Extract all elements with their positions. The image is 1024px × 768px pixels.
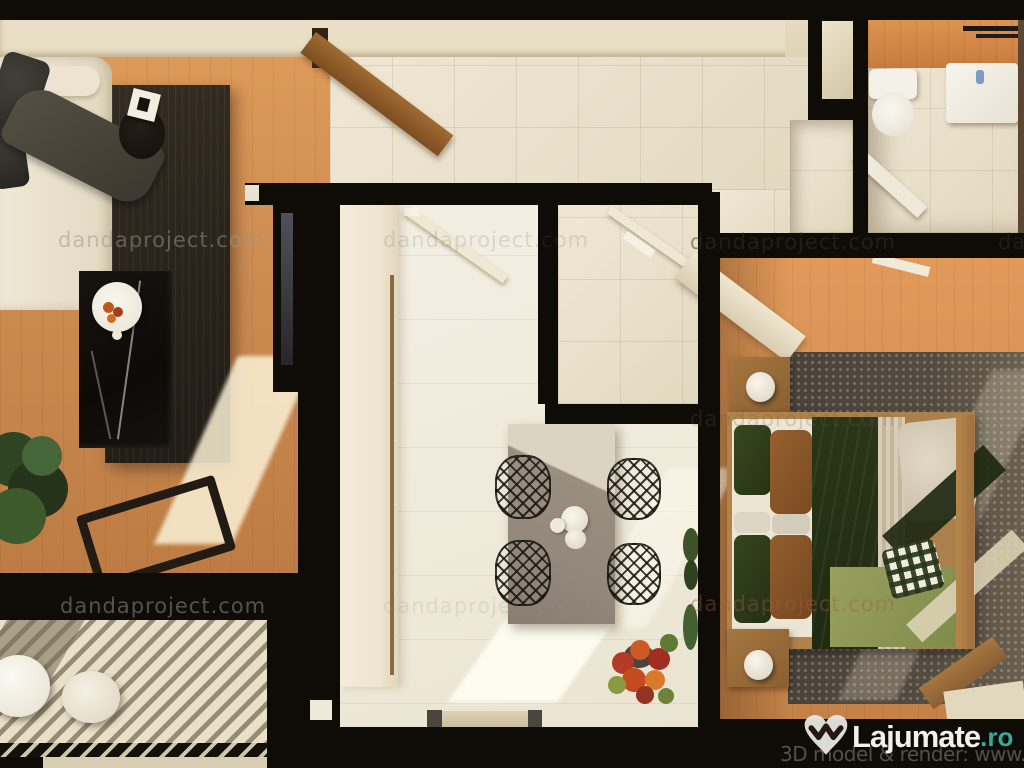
fruit xyxy=(107,314,116,323)
top-exterior-wall xyxy=(0,0,1024,20)
bed-frame-footboard xyxy=(956,415,974,649)
dining-chair xyxy=(607,543,661,605)
dining-chair xyxy=(495,455,551,519)
dining-chair xyxy=(607,458,661,520)
wall-niche xyxy=(310,700,332,720)
bathroom-door-panel xyxy=(822,21,853,100)
towel-bar xyxy=(976,34,1022,38)
bathroom-south-wall xyxy=(712,233,1024,258)
sink-faucet xyxy=(976,70,984,84)
towel-bar xyxy=(963,26,1018,31)
small-bowl xyxy=(112,330,122,340)
site-logo: Lajumate .ro xyxy=(802,712,1013,762)
plant-by-wall xyxy=(683,528,699,562)
lajumate-heart-icon xyxy=(802,712,850,762)
bed-pillow-white xyxy=(734,512,770,533)
balcony-door-sill-cap xyxy=(528,710,542,728)
flower-leaf xyxy=(660,634,678,652)
door-jamb-cap xyxy=(245,185,259,201)
floor-strip xyxy=(43,757,267,768)
site-logo-tld: .ro xyxy=(980,722,1013,753)
bathroom-east-edge xyxy=(1018,20,1024,233)
kitchen-cabinet-edge xyxy=(390,275,394,675)
bed-pillow-green xyxy=(734,425,771,495)
bedroom-west-wall xyxy=(698,192,720,768)
toilet-bowl xyxy=(872,92,914,136)
bed-pillow-brown xyxy=(770,535,812,619)
flower xyxy=(636,686,654,704)
corridor-rail-cap xyxy=(404,208,419,216)
bed-pillow-white xyxy=(772,514,810,534)
table-lamp xyxy=(744,650,773,680)
flower xyxy=(630,640,650,660)
table-plate xyxy=(565,529,586,549)
plant-by-wall xyxy=(683,604,698,650)
dining-chair xyxy=(495,540,551,606)
living-kitchen-wall xyxy=(298,392,320,573)
site-logo-text: Lajumate xyxy=(852,719,980,755)
round-side-table xyxy=(62,671,120,723)
bed-pillow-brown xyxy=(770,430,812,514)
flower-leaf xyxy=(658,688,674,704)
table-bowl xyxy=(550,518,565,533)
flower-leaf xyxy=(608,676,626,694)
balcony-door-sill xyxy=(427,711,542,727)
bathroom-west-wall xyxy=(853,20,868,233)
kitchen-west-wall xyxy=(318,205,340,768)
rug-fringe-border xyxy=(0,743,267,757)
closet-west-wall xyxy=(538,205,558,404)
tv-screen xyxy=(281,213,293,365)
closet-south-wall xyxy=(545,404,710,424)
plant-by-wall xyxy=(684,560,698,590)
entry-hall-floor-corner xyxy=(790,120,853,233)
table-lamp xyxy=(746,372,775,402)
bed-pillow-green xyxy=(734,535,771,623)
entry-jog-wall xyxy=(808,20,822,108)
balcony-door-sill-cap xyxy=(427,710,442,728)
lower-left-north-wall xyxy=(0,573,300,620)
potted-plant-leaf xyxy=(22,436,62,476)
floorplan-render: dandaproject.comdandaproject.comdandapro… xyxy=(0,0,1024,768)
entry-jog-wall-h xyxy=(808,99,868,120)
top-wall-ledge xyxy=(0,20,810,57)
lower-left-east-wall xyxy=(267,573,320,768)
